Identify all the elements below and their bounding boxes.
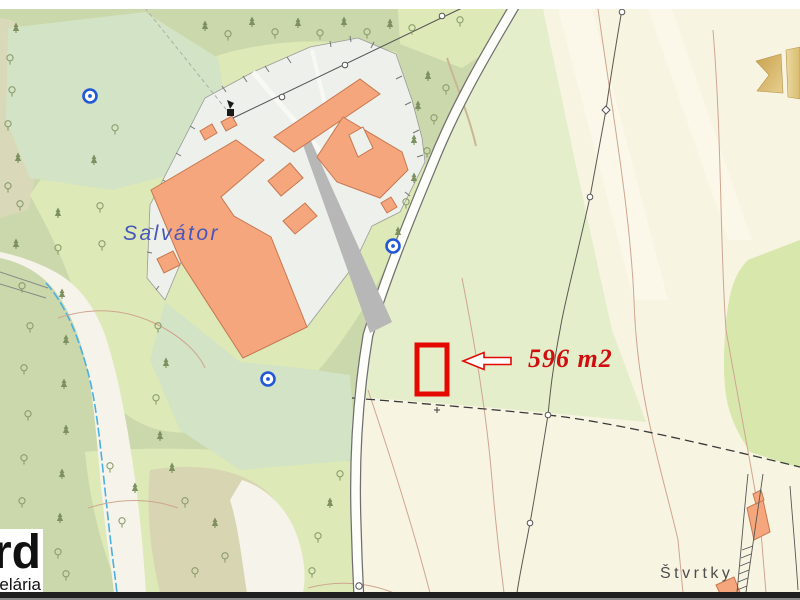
locality-label: Štvrtky bbox=[660, 563, 733, 582]
logo-text-sub: elária bbox=[0, 575, 42, 594]
logo-text-main: rd bbox=[0, 526, 41, 579]
map-canvas: Salvátor 596 m2 Štvrtky rd elária bbox=[0, 0, 800, 600]
agency-logo-watermark: rd elária bbox=[0, 526, 43, 600]
bottom-border bbox=[0, 592, 800, 598]
map-screenshot: Salvátor 596 m2 Štvrtky rd elária bbox=[0, 0, 800, 600]
top-border bbox=[0, 0, 800, 9]
settlement-label: Salvátor bbox=[123, 222, 220, 245]
parcel-area-label: 596 m2 bbox=[528, 344, 613, 373]
